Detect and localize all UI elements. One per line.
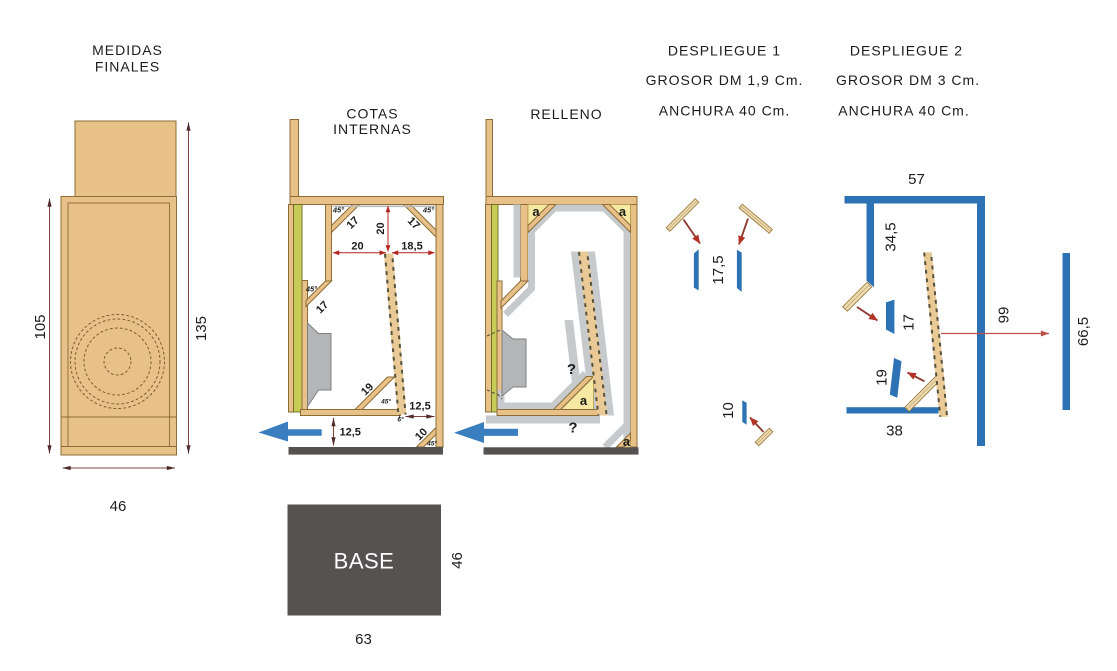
svg-text:19: 19: [873, 369, 890, 386]
svg-text:a: a: [619, 204, 627, 219]
svg-text:ANCHURA 40 Cm.: ANCHURA 40 Cm.: [659, 103, 790, 119]
svg-text:FINALES: FINALES: [95, 59, 160, 75]
svg-text:?: ?: [567, 361, 576, 378]
svg-text:135: 135: [193, 316, 210, 341]
svg-text:?: ?: [568, 420, 577, 437]
svg-text:20: 20: [351, 241, 363, 253]
svg-text:38: 38: [886, 423, 903, 440]
svg-text:GROSOR DM 3 Cm.: GROSOR DM 3 Cm.: [836, 72, 980, 88]
svg-text:10: 10: [720, 402, 737, 419]
svg-text:57: 57: [908, 171, 925, 188]
svg-text:63: 63: [355, 631, 372, 648]
svg-text:45°: 45°: [305, 285, 318, 294]
svg-text:46: 46: [449, 552, 466, 569]
svg-text:105: 105: [32, 314, 49, 339]
svg-text:45°: 45°: [426, 440, 437, 448]
svg-text:INTERNAS: INTERNAS: [333, 121, 412, 137]
svg-text:GROSOR DM 1,9 Cm.: GROSOR DM 1,9 Cm.: [646, 72, 804, 88]
svg-text:99: 99: [995, 307, 1012, 324]
svg-text:ANCHURA 40 Cm.: ANCHURA 40 Cm.: [838, 103, 969, 119]
svg-text:DESPLIEGUE 2: DESPLIEGUE 2: [850, 43, 963, 59]
svg-text:a: a: [580, 393, 588, 408]
svg-text:20: 20: [375, 222, 387, 234]
svg-text:45°: 45°: [422, 206, 435, 215]
svg-text:66,5: 66,5: [1075, 317, 1092, 346]
svg-text:COTAS: COTAS: [346, 106, 398, 122]
svg-text:DESPLIEGUE 1: DESPLIEGUE 1: [668, 43, 781, 59]
svg-text:46: 46: [110, 498, 127, 515]
svg-text:6°: 6°: [397, 416, 404, 424]
svg-text:18,5: 18,5: [401, 241, 422, 253]
svg-text:12,5: 12,5: [409, 401, 430, 413]
svg-text:MEDIDAS: MEDIDAS: [92, 42, 163, 58]
svg-text:34,5: 34,5: [882, 222, 899, 251]
svg-text:45°: 45°: [380, 398, 391, 406]
svg-text:RELLENO: RELLENO: [530, 106, 602, 122]
svg-text:17: 17: [900, 314, 917, 331]
svg-text:12,5: 12,5: [340, 427, 361, 439]
svg-text:17,5: 17,5: [710, 255, 727, 284]
svg-text:45°: 45°: [332, 206, 345, 215]
svg-text:BASE: BASE: [334, 549, 395, 574]
svg-text:a: a: [623, 434, 631, 449]
svg-text:a: a: [532, 204, 540, 219]
